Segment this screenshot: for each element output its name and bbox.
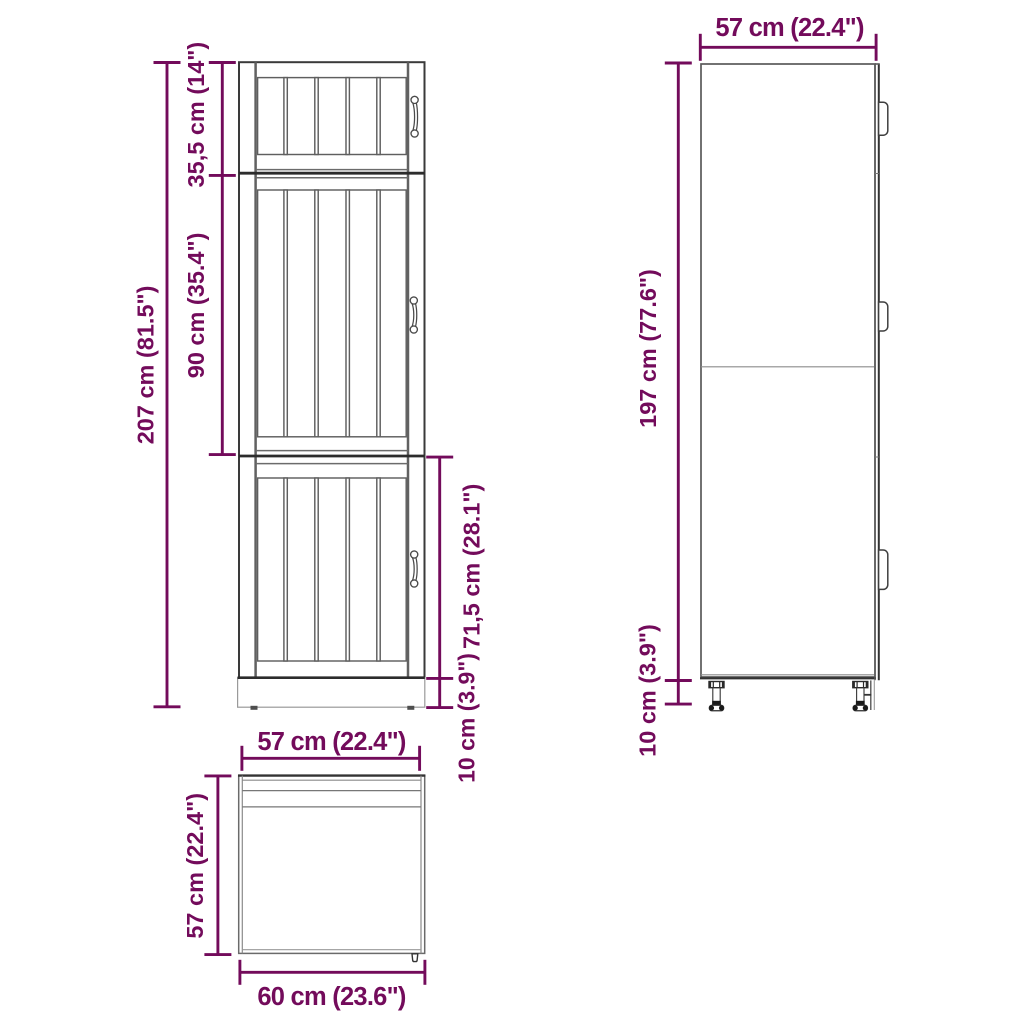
- svg-text:207 cm (81.5"): 207 cm (81.5"): [133, 286, 159, 445]
- svg-text:57 cm (22.4"): 57 cm (22.4"): [257, 728, 406, 756]
- svg-text:57 cm (22.4"): 57 cm (22.4"): [182, 793, 208, 939]
- svg-text:71,5 cm (28.1"): 71,5 cm (28.1"): [459, 484, 485, 649]
- svg-text:197 cm (77.6"): 197 cm (77.6"): [635, 269, 661, 428]
- svg-text:10 cm (3.9"): 10 cm (3.9"): [454, 653, 480, 783]
- svg-text:10 cm (3.9"): 10 cm (3.9"): [635, 624, 661, 757]
- svg-text:57 cm (22.4"): 57 cm (22.4"): [715, 14, 864, 42]
- svg-text:35,5 cm (14"): 35,5 cm (14"): [183, 42, 209, 188]
- svg-text:60 cm (23.6"): 60 cm (23.6"): [257, 983, 406, 1011]
- svg-text:90 cm (35.4"): 90 cm (35.4"): [183, 233, 209, 379]
